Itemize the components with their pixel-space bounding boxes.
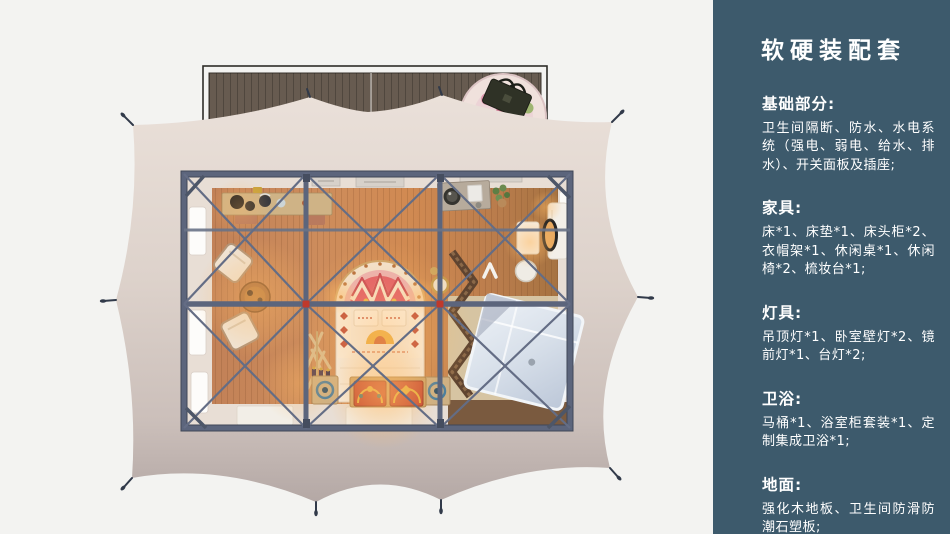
sidebar-content: 基础部分: 卫生间隔断、防水、水电系统（强电、弱电、给水、排水）、开关面板及插座…	[713, 92, 950, 534]
sidebar-title: 软硬装配套	[713, 31, 950, 65]
spec-body-basics: 卫生间隔断、防水、水电系统（强电、弱电、给水、排水）、开关面板及插座;	[762, 120, 935, 175]
tent-floorplan-svg	[0, 0, 713, 534]
spec-body-bathroom: 马桶*1、浴室柜套装*1、定制集成卫浴*1;	[762, 415, 935, 452]
hub-connector-left	[303, 301, 310, 308]
spec-section-lighting: 灯具: 吊顶灯*1、卧室壁灯*2、镜前灯*1、台灯*2;	[762, 301, 935, 366]
spec-sidebar: 软硬装配套 基础部分: 卫生间隔断、防水、水电系统（强电、弱电、给水、排水）、开…	[713, 0, 950, 534]
room-interior	[182, 172, 584, 449]
spec-body-lighting: 吊顶灯*1、卧室壁灯*2、镜前灯*1、台灯*2;	[762, 329, 935, 366]
spec-heading-bathroom: 卫浴:	[762, 387, 935, 409]
spec-heading-basics: 基础部分:	[762, 92, 935, 114]
spec-heading-lighting: 灯具:	[762, 301, 935, 323]
page: 软硬装配套 基础部分: 卫生间隔断、防水、水电系统（强电、弱电、给水、排水）、开…	[0, 0, 950, 534]
spec-heading-furniture: 家具:	[762, 196, 935, 218]
spec-section-bathroom: 卫浴: 马桶*1、浴室柜套装*1、定制集成卫浴*1;	[762, 387, 935, 452]
washbasin-counter	[437, 181, 490, 212]
spec-section-basics: 基础部分: 卫生间隔断、防水、水电系统（强电、弱电、给水、排水）、开关面板及插座…	[762, 92, 935, 175]
tent-floorplan-render	[0, 0, 713, 534]
spec-section-furniture: 家具: 床*1、床垫*1、床头柜*2、衣帽架*1、休闲桌*1、休闲椅*2、梳妆台…	[762, 196, 935, 279]
spec-heading-flooring: 地面:	[762, 473, 935, 495]
spec-body-flooring: 强化木地板、卫生间防滑防潮石塑板;	[762, 501, 935, 534]
spec-section-flooring: 地面: 强化木地板、卫生间防滑防潮石塑板;	[762, 473, 935, 534]
hub-connector-right	[437, 301, 444, 308]
spec-body-furniture: 床*1、床垫*1、床头柜*2、衣帽架*1、休闲桌*1、休闲椅*2、梳妆台*1;	[762, 224, 935, 279]
